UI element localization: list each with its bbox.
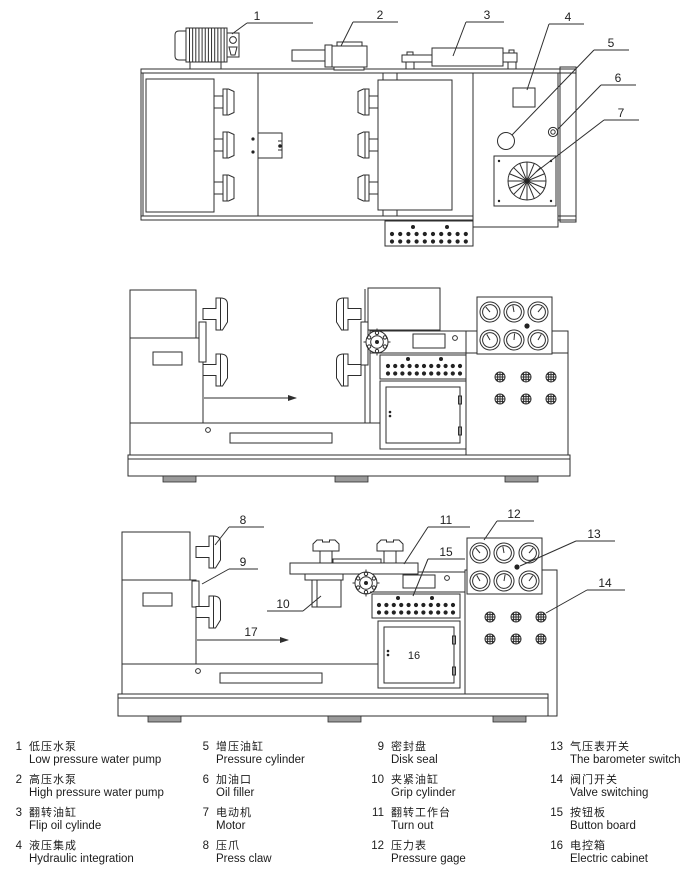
base bbox=[118, 694, 548, 716]
legend-item-text: 密封盘 Disk seal bbox=[391, 741, 438, 766]
callout-number: 13 bbox=[587, 527, 601, 541]
button-board bbox=[372, 594, 460, 618]
top-view: 1 2 3 4 5 6 7 bbox=[141, 8, 639, 246]
legend-item-english: Turn out bbox=[391, 820, 451, 832]
callout-number: 6 bbox=[615, 71, 622, 85]
legend-item-5: 5 增压油缸 Pressure cylinder bbox=[193, 741, 368, 774]
legend-item-7: 7 电动机 Motor bbox=[193, 807, 368, 840]
legend-item-english: Grip cylinder bbox=[391, 787, 456, 799]
legend-item-number: 4 bbox=[6, 840, 22, 853]
legend-item-chinese: 液压集成 bbox=[29, 840, 134, 853]
legend-item-6: 6 加油口 Oil filler bbox=[193, 774, 368, 807]
press-claw bbox=[337, 354, 362, 386]
legend-item-text: 阀门开关 Valve switching bbox=[570, 774, 648, 799]
legend-item-chinese: 阀门开关 bbox=[570, 774, 648, 787]
flip-table-section bbox=[143, 73, 282, 216]
legend-item-chinese: 电动机 bbox=[216, 807, 252, 820]
press-claw bbox=[214, 132, 234, 158]
legend-item-english: Button board bbox=[570, 820, 636, 832]
legend-item-2: 2 高压水泵 High pressure water pump bbox=[6, 774, 193, 807]
legend-item-number: 3 bbox=[6, 807, 22, 820]
button-board-top-view bbox=[385, 221, 473, 246]
seal-disk bbox=[192, 581, 199, 607]
valve-switch bbox=[521, 394, 531, 404]
electric-cabinet: 16 bbox=[378, 621, 460, 688]
legend-item-number: 11 bbox=[368, 807, 384, 820]
foot bbox=[163, 476, 196, 482]
callout-number: 4 bbox=[565, 10, 572, 24]
cabinet-door bbox=[386, 387, 460, 443]
legend-item-chinese: 密封盘 bbox=[391, 741, 438, 754]
turn-table bbox=[290, 563, 418, 574]
valve-switch bbox=[521, 372, 531, 382]
callout-number: 9 bbox=[240, 555, 247, 569]
legend-item-number: 5 bbox=[193, 741, 209, 754]
legend-item-14: 14 阀门开关 Valve switching bbox=[547, 774, 681, 807]
legend-item-chinese: 加油口 bbox=[216, 774, 254, 787]
legend-item-english: The barometer switch bbox=[570, 754, 681, 766]
front-view bbox=[128, 288, 570, 482]
legend-item-chinese: 翻转工作台 bbox=[391, 807, 451, 820]
base bbox=[128, 455, 570, 476]
callout-2: 2 bbox=[341, 8, 398, 46]
headstock bbox=[122, 532, 221, 664]
callout-number: 16 bbox=[408, 650, 420, 662]
callout-number: 3 bbox=[484, 8, 491, 22]
motor-fan-icon bbox=[508, 162, 546, 200]
legend-item-number: 2 bbox=[6, 774, 22, 787]
flip-oil-cylinder bbox=[402, 48, 517, 69]
callout-number: 1 bbox=[254, 9, 261, 23]
legend-item-number: 16 bbox=[547, 840, 563, 853]
legend-item-text: 高压水泵 High pressure water pump bbox=[29, 774, 164, 799]
legend-item-text: 压力表 Pressure gage bbox=[391, 840, 466, 865]
valve-switch bbox=[485, 612, 495, 622]
legend-item-chinese: 翻转油缸 bbox=[29, 807, 101, 820]
legend-item-chinese: 高压水泵 bbox=[29, 774, 164, 787]
press-claw bbox=[358, 89, 378, 115]
callout-12: 12 bbox=[484, 507, 534, 540]
legend-item-chinese: 低压水泵 bbox=[29, 741, 161, 754]
legend-item-3: 3 翻转油缸 Flip oil cylinde bbox=[6, 807, 193, 840]
legend-item-english: Valve switching bbox=[570, 787, 648, 799]
valve-switch bbox=[546, 372, 556, 382]
foot bbox=[328, 716, 361, 722]
legend-item-english: High pressure water pump bbox=[29, 787, 164, 799]
foot bbox=[148, 716, 181, 722]
callout-number: 10 bbox=[276, 597, 290, 611]
oil-filler bbox=[513, 88, 535, 107]
legend-item-chinese: 按钮板 bbox=[570, 807, 636, 820]
callout-number: 17 bbox=[244, 625, 258, 639]
valve-switch bbox=[511, 612, 521, 622]
work-table bbox=[378, 80, 452, 210]
callout-number: 7 bbox=[618, 106, 625, 120]
flip-view: 17 bbox=[118, 507, 625, 722]
legend-item-chinese: 增压油缸 bbox=[216, 741, 305, 754]
legend-item-number: 6 bbox=[193, 774, 209, 787]
legend-item-chinese: 压爪 bbox=[216, 840, 272, 853]
foot bbox=[335, 476, 368, 482]
legend-item-4: 4 液压集成 Hydraulic integration bbox=[6, 840, 193, 873]
press-claw bbox=[337, 298, 362, 330]
press-claw bbox=[358, 132, 378, 158]
legend-item-english: Oil filler bbox=[216, 787, 254, 799]
press-claw bbox=[203, 354, 228, 386]
legend-item-number: 9 bbox=[368, 741, 384, 754]
legend-item-english: Motor bbox=[216, 820, 252, 832]
press-claw bbox=[196, 596, 221, 628]
callout-number: 2 bbox=[377, 8, 384, 22]
legend-item-12: 12 压力表 Pressure gage bbox=[368, 840, 547, 873]
press-claw bbox=[214, 175, 234, 201]
valve-switch bbox=[485, 634, 495, 644]
callout-1: 1 bbox=[232, 9, 313, 34]
legend-item-10: 10 夹紧油缸 Grip cylinder bbox=[368, 774, 547, 807]
legend-item-text: 气压表开关 The barometer switch bbox=[570, 741, 681, 766]
press-claw bbox=[196, 536, 221, 568]
legend-item-text: 低压水泵 Low pressure water pump bbox=[29, 741, 161, 766]
legend-item-number: 15 bbox=[547, 807, 563, 820]
electric-cabinet bbox=[380, 381, 466, 449]
legend-item-11: 11 翻转工作台 Turn out bbox=[368, 807, 547, 840]
legend-item-text: 夹紧油缸 Grip cylinder bbox=[391, 774, 456, 799]
machine-drawing: 1 2 3 4 5 6 7 bbox=[0, 0, 688, 738]
legend-item-number: 12 bbox=[368, 840, 384, 853]
legend-item-text: 增压油缸 Pressure cylinder bbox=[216, 741, 305, 766]
bed-slot bbox=[230, 433, 332, 443]
legend-item-number: 7 bbox=[193, 807, 209, 820]
foot bbox=[505, 476, 538, 482]
callout-number: 14 bbox=[598, 576, 612, 590]
legend-item-13: 13 气压表开关 The barometer switch bbox=[547, 741, 681, 774]
press-claw bbox=[214, 89, 234, 115]
legend-item-english: Flip oil cylinde bbox=[29, 820, 101, 832]
high-pressure-water-pump bbox=[292, 42, 367, 70]
callout-number: 8 bbox=[240, 513, 247, 527]
valve-switch bbox=[546, 394, 556, 404]
legend-item-text: 压爪 Press claw bbox=[216, 840, 272, 865]
callout-number: 12 bbox=[507, 507, 521, 521]
barometer-switch bbox=[514, 564, 519, 569]
legend-item-number: 10 bbox=[368, 774, 384, 787]
legend-item-number: 8 bbox=[193, 840, 209, 853]
barometer-switch bbox=[524, 323, 529, 328]
low-pressure-water-pump bbox=[175, 28, 239, 69]
press-claw bbox=[358, 175, 378, 201]
callout-8: 8 bbox=[215, 513, 264, 545]
legend-item-english: Electric cabinet bbox=[570, 853, 648, 865]
valve-switch bbox=[495, 394, 505, 404]
legend-item-16: 16 电控箱 Electric cabinet bbox=[547, 840, 681, 873]
pressure-cylinder-port bbox=[498, 133, 515, 150]
gauge-panel bbox=[476, 297, 552, 354]
legend-item-text: 电控箱 Electric cabinet bbox=[570, 840, 648, 865]
callout-11: 11 bbox=[404, 513, 470, 564]
callout-number: 11 bbox=[440, 513, 453, 527]
legend-item-text: 电动机 Motor bbox=[216, 807, 252, 832]
legend-item-text: 翻转油缸 Flip oil cylinde bbox=[29, 807, 101, 832]
legend-item-text: 按钮板 Button board bbox=[570, 807, 636, 832]
headstock bbox=[130, 290, 228, 423]
legend-item-chinese: 夹紧油缸 bbox=[391, 774, 456, 787]
work-table-section bbox=[358, 73, 452, 216]
legend-item-chinese: 压力表 bbox=[391, 840, 466, 853]
flip-table bbox=[146, 79, 214, 212]
button-board bbox=[380, 355, 466, 379]
technical-drawing-page: 1 2 3 4 5 6 7 bbox=[0, 0, 688, 875]
legend-item-english: Disk seal bbox=[391, 754, 438, 766]
press-claw bbox=[203, 298, 228, 330]
pressure-cylinder-housing bbox=[368, 288, 440, 330]
parts-legend: 1 低压水泵 Low pressure water pump 2 高压水泵 Hi… bbox=[6, 741, 681, 873]
oil-filler-port bbox=[548, 127, 557, 136]
right-panel bbox=[473, 73, 558, 227]
legend-item-8: 8 压爪 Press claw bbox=[193, 840, 368, 873]
legend-item-number: 13 bbox=[547, 741, 563, 754]
legend-item-chinese: 气压表开关 bbox=[570, 741, 681, 754]
legend-item-1: 1 低压水泵 Low pressure water pump bbox=[6, 741, 193, 774]
legend-item-9: 9 密封盘 Disk seal bbox=[368, 741, 547, 774]
legend-item-number: 1 bbox=[6, 741, 22, 754]
legend-item-english: Pressure gage bbox=[391, 853, 466, 865]
valve-switch bbox=[536, 612, 546, 622]
foot bbox=[493, 716, 526, 722]
valve-switch bbox=[536, 634, 546, 644]
legend-item-chinese: 电控箱 bbox=[570, 840, 648, 853]
valve-switch bbox=[511, 634, 521, 644]
legend-item-text: 翻转工作台 Turn out bbox=[391, 807, 451, 832]
legend-item-english: Pressure cylinder bbox=[216, 754, 305, 766]
legend-item-english: Press claw bbox=[216, 853, 272, 865]
legend-item-english: Hydraulic integration bbox=[29, 853, 134, 865]
legend-item-text: 加油口 Oil filler bbox=[216, 774, 254, 799]
name-plate bbox=[413, 334, 445, 348]
callout-number: 5 bbox=[608, 36, 615, 50]
callout-number: 15 bbox=[439, 545, 453, 559]
legend-item-text: 液压集成 Hydraulic integration bbox=[29, 840, 134, 865]
bed-slot bbox=[220, 673, 322, 683]
seal-disk bbox=[199, 322, 206, 362]
callout-14: 14 bbox=[546, 576, 625, 613]
bed-end-cap bbox=[560, 67, 576, 222]
legend-item-english: Low pressure water pump bbox=[29, 754, 161, 766]
legend-item-number: 14 bbox=[547, 774, 563, 787]
valve-switch bbox=[495, 372, 505, 382]
legend-item-15: 15 按钮板 Button board bbox=[547, 807, 681, 840]
gauge-panel bbox=[466, 538, 543, 595]
grip-cylinder bbox=[312, 580, 341, 607]
